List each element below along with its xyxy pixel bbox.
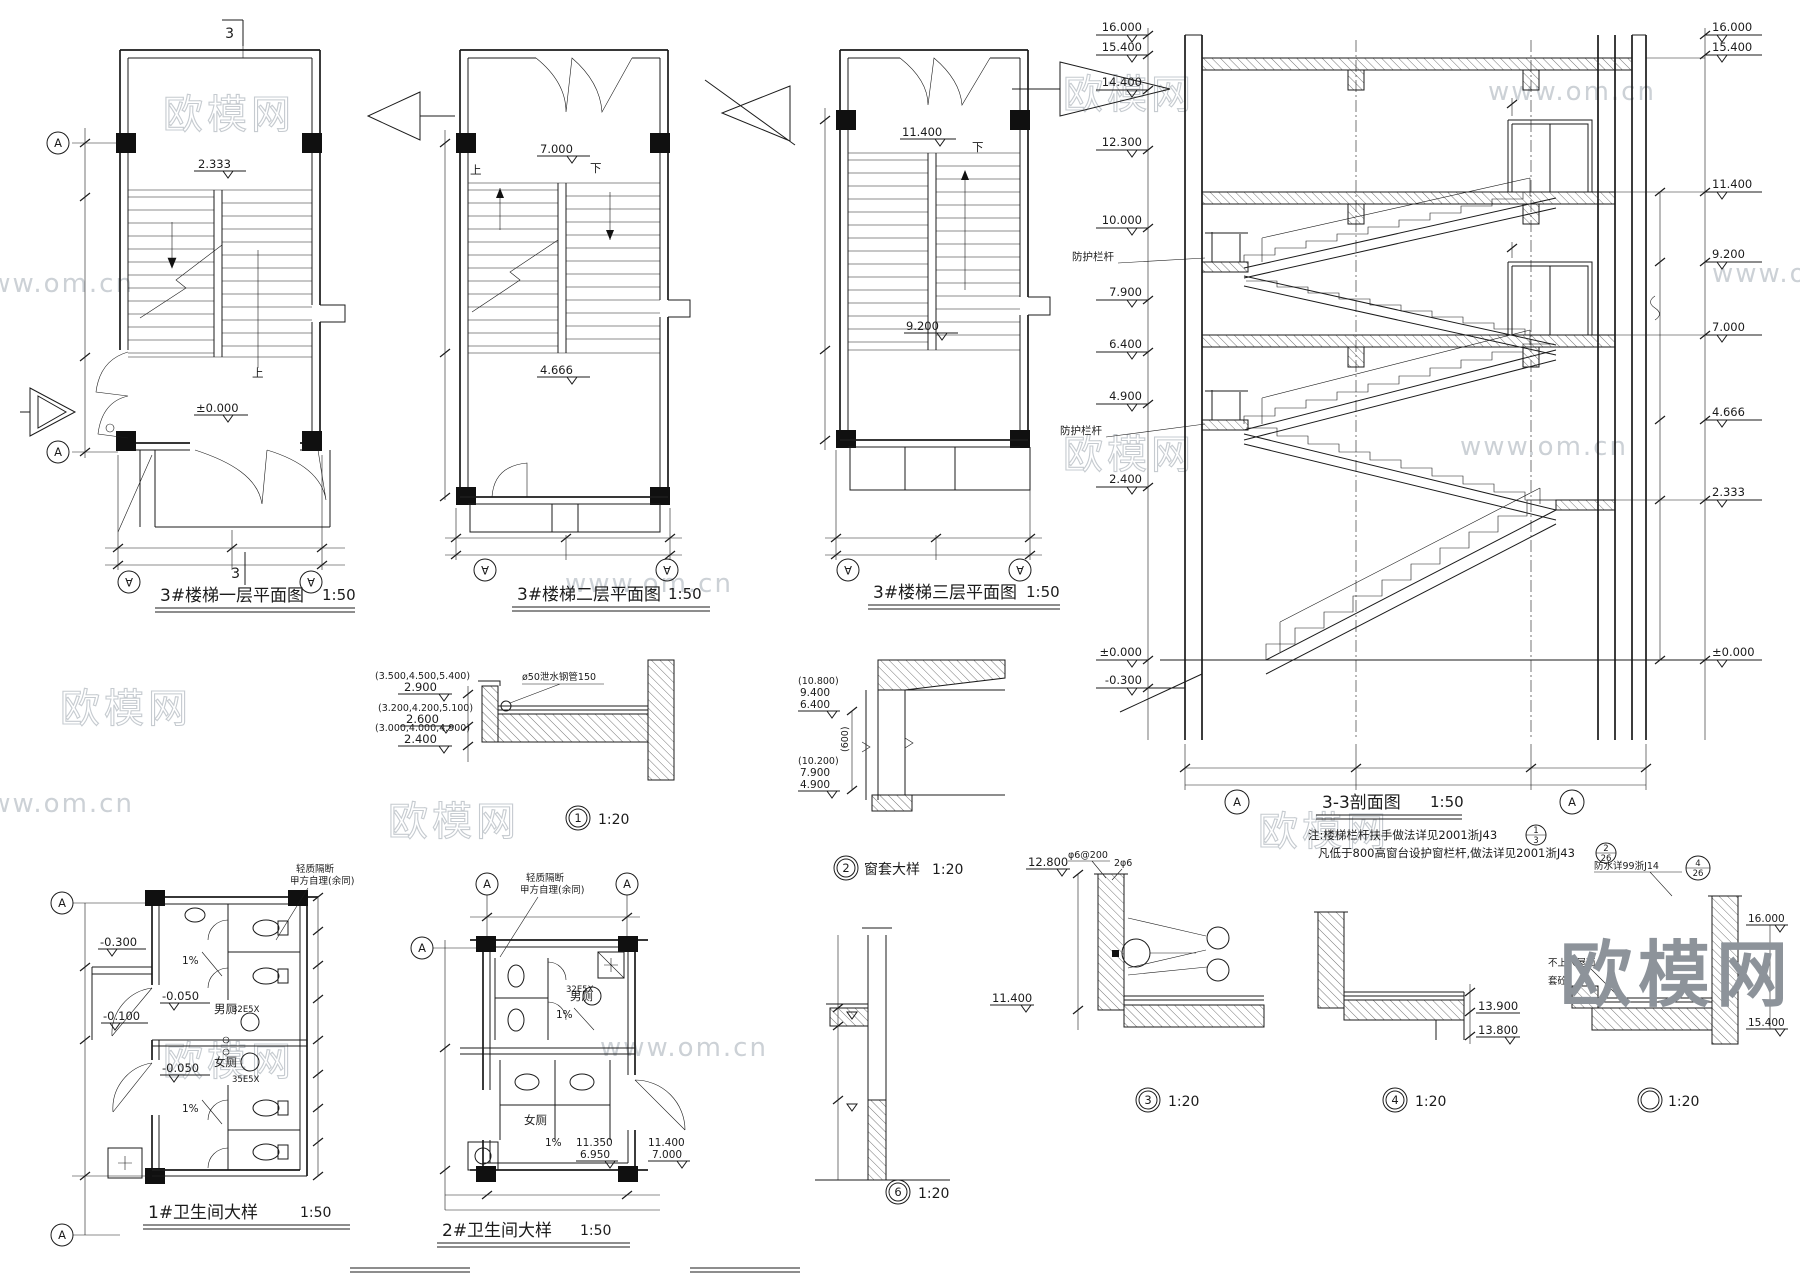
level-label: 2.400 [1109, 472, 1142, 486]
d1-value-3: 2.400 [404, 732, 437, 746]
watermark-brand: 欧模网 [163, 92, 295, 138]
bath1-slope-2: 1% [182, 1103, 199, 1115]
level-label: 2.333 [1712, 485, 1745, 499]
bath2-lv-out-a: 11.400 [648, 1137, 685, 1149]
grid-bubble-a-flipped: A [481, 563, 489, 577]
bath2-note-2: 甲方自理(余同) [520, 884, 584, 896]
d5-ref-top: 4 [1695, 859, 1700, 869]
d4-scale: 1:20 [1415, 1094, 1446, 1110]
note-ref-top: 2 [1603, 844, 1608, 854]
level-label: -0.300 [1105, 673, 1142, 687]
section-right-levels: 16.000 15.400 11.400 9.200 7.000 4.666 2… [1700, 20, 1762, 667]
d2-bot-a: 7.900 [800, 767, 830, 779]
plan2-level-top: 7.000 [540, 142, 573, 156]
level-label: 15.400 [1712, 40, 1752, 54]
plan3-direction-down: 下 [972, 140, 984, 154]
plan3-level-top: 11.400 [902, 125, 942, 139]
section-flag-bottom: 3 [231, 566, 240, 582]
drawing-canvas: 欧模网 欧模网 欧模网 欧模网 欧模网 欧模网 欧模网 www.om.cn ww… [0, 0, 1800, 1275]
level-label: 7.900 [1109, 285, 1142, 299]
note-ref-bottom: 3 [1533, 836, 1538, 846]
level-label: 12.300 [1102, 135, 1142, 149]
d1-pipe-label: ø50泄水钢管150 [522, 671, 596, 683]
grid-bubble-a-flipped: A [1016, 563, 1024, 577]
detail-6-wall-section: 6 1:20 [815, 928, 950, 1204]
plan2-direction-up: 上 [470, 163, 482, 177]
d3-rebar-b: 2φ6 [1114, 858, 1132, 869]
plan1-title: 3#楼梯一层平面图 [160, 586, 304, 606]
bath2-room-m: 男厕 [570, 989, 593, 1003]
level-label: 7.000 [1712, 320, 1745, 334]
bath2-scale: 1:50 [580, 1223, 611, 1239]
section-flag-top: 3 [225, 26, 234, 42]
plan-second-floor: 上 下 7.000 4.666 A A 3#楼梯二层平面图 1:50 [368, 50, 710, 611]
d2-top-a: 9.400 [800, 687, 830, 699]
d2-name: 窗套大样 [864, 861, 920, 878]
bath2-lv-out-b: 7.000 [652, 1149, 682, 1161]
d3-level-top: 12.800 [1028, 855, 1068, 869]
grid-bubble-a: A [483, 877, 491, 891]
bath1-level-b: -0.050 [162, 989, 199, 1003]
detail-3-parapet: 12.800 φ6@200 2φ6 11.400 3 1:20 [990, 850, 1264, 1112]
d3-rebar-a: φ6@200 [1068, 850, 1108, 861]
level-label: 9.200 [1712, 247, 1745, 261]
bath1-room-f: 女厕 [214, 1055, 237, 1069]
grid-bubble-a-flipped: A [307, 575, 315, 589]
d1-value-1: 2.900 [404, 680, 437, 694]
watermark-brand-large: 欧模网 [1560, 933, 1794, 1017]
grid-bubble-a-flipped: A [125, 575, 133, 589]
d5-level-b: 15.400 [1748, 1017, 1785, 1029]
level-label: 4.666 [1712, 405, 1745, 419]
grid-bubble-a-flipped: A [663, 563, 671, 577]
level-label: 11.400 [1712, 177, 1752, 191]
d2-scale: 1:20 [932, 862, 963, 878]
d2-bot-paren: (10.200) [798, 756, 839, 767]
d5-ref: 防水详99浙J14 [1594, 860, 1659, 872]
level-label: ±0.000 [1712, 645, 1755, 659]
bath1-fixture-tag-2: 35E5X [232, 1075, 260, 1085]
section-title: 3-3剖面图 [1322, 793, 1401, 813]
level-label: ±0.000 [1099, 645, 1142, 659]
watermark-brand: 欧模网 [388, 799, 520, 845]
plan1-level-top: 2.333 [198, 157, 231, 171]
d3-level-bottom: 11.400 [992, 991, 1032, 1005]
d5-ref-bottom: 26 [1693, 869, 1704, 879]
grid-bubble-a: A [418, 941, 426, 955]
plan1-level-bottom: ±0.000 [196, 401, 239, 415]
watermark-url: www.om.cn [0, 269, 134, 299]
watermark-brand: 欧模网 [60, 686, 192, 732]
note-ref-top: 1 [1533, 826, 1538, 836]
plan1-direction-up: 上 [252, 366, 264, 380]
bath1-slope: 1% [182, 955, 199, 967]
grid-bubble-a: A [58, 896, 66, 910]
bath2-lv-in-b: 6.950 [580, 1149, 610, 1161]
bath1-note-1: 轻质隔断 [296, 863, 335, 875]
d2-number: 2 [842, 861, 849, 875]
section-note-2: 凡低于800高窗台设护窗栏杆,做法详见2001浙J43 [1318, 846, 1575, 860]
d6-scale: 1:20 [918, 1186, 949, 1202]
plan2-title: 3#楼梯二层平面图 [517, 585, 661, 605]
detail-2-window-trim: (10.800) 9.400 6.400 (600) (10.200) 7.90… [798, 660, 1005, 880]
watermark-url: www.om.cn [0, 789, 134, 819]
d2-mid-dim: (600) [840, 726, 851, 752]
d3-number: 3 [1144, 1093, 1151, 1107]
grid-bubble-a: A [1568, 795, 1576, 809]
section-scale: 1:50 [1430, 793, 1464, 811]
bath1-note-2: 甲方自理(余同) [290, 875, 354, 887]
section-railing-label: 防护栏杆 [1072, 250, 1114, 263]
detail-4-slab-edge: 13.900 13.800 4 1:20 [1314, 912, 1520, 1112]
bath1-level-c: -0.100 [103, 1009, 140, 1023]
watermark-url: www.om.cn [1712, 259, 1800, 289]
d4-number: 4 [1391, 1093, 1398, 1107]
bath2-room-f: 女厕 [524, 1113, 547, 1127]
bath1-level-d: -0.050 [162, 1061, 199, 1075]
bath2-slope-2: 1% [545, 1137, 562, 1149]
d4-level-a: 13.900 [1478, 999, 1518, 1013]
level-label: 15.400 [1102, 40, 1142, 54]
grid-bubble-a: A [623, 877, 631, 891]
section-railing-label: 防护栏杆 [1060, 424, 1102, 437]
plan3-level-bottom: 9.200 [906, 319, 939, 333]
d2-bot-b: 4.900 [800, 779, 830, 791]
bath2-lv-in-a: 11.350 [576, 1137, 613, 1149]
grid-bubble-a-flipped: A [844, 563, 852, 577]
plan3-title: 3#楼梯三层平面图 [873, 583, 1017, 603]
section-left-levels: 16.000 15.400 14.400 12.300 10.000 7.900… [1096, 20, 1153, 695]
grid-bubble-a: A [1233, 795, 1241, 809]
grid-bubble-a: A [58, 1228, 66, 1242]
d2-top-b: 6.400 [800, 699, 830, 711]
plan2-level-bottom: 4.666 [540, 363, 573, 377]
bath1-scale: 1:50 [300, 1205, 331, 1221]
section-note-1: 注:楼梯栏杆扶手做法详见2001浙J43 [1308, 828, 1497, 842]
level-label: 16.000 [1712, 20, 1752, 34]
plan2-direction-down: 下 [590, 161, 602, 175]
d5-level-a: 16.000 [1748, 913, 1785, 925]
plan3-scale: 1:50 [1026, 583, 1060, 601]
bath1-room-m: 男厕 [214, 1002, 237, 1016]
cutoff-stubs [350, 1268, 800, 1272]
cad-sheet: 欧模网 欧模网 欧模网 欧模网 欧模网 欧模网 欧模网 www.om.cn ww… [0, 0, 1800, 1275]
plan1-scale: 1:50 [322, 586, 356, 604]
plan2-scale: 1:50 [668, 585, 702, 603]
bath2-note-1: 轻质隔断 [526, 872, 565, 884]
d5-scale: 1:20 [1668, 1094, 1699, 1110]
d6-number: 6 [894, 1185, 901, 1199]
bath1-level-a: -0.300 [100, 935, 137, 949]
bath1-title: 1#卫生间大样 [148, 1203, 258, 1223]
d1-scale: 1:20 [598, 812, 629, 828]
grid-bubble-a: A [54, 445, 62, 459]
d1-number: 1 [574, 811, 581, 825]
level-label: 6.400 [1109, 337, 1142, 351]
plan-third-floor: 下 11.400 9.200 A A 3#楼梯三层平面图 1:50 [705, 50, 1060, 609]
watermark-url: www.om.cn [1460, 432, 1628, 462]
d3-scale: 1:20 [1168, 1094, 1199, 1110]
level-label: 4.900 [1109, 389, 1142, 403]
grid-bubble-a: A [54, 136, 62, 150]
bath2-title: 2#卫生间大样 [442, 1221, 552, 1241]
bath2-slope: 1% [556, 1009, 573, 1021]
d4-level-b: 13.800 [1478, 1023, 1518, 1037]
level-label: 10.000 [1102, 213, 1142, 227]
d2-top-paren: (10.800) [798, 676, 839, 687]
level-label: 16.000 [1102, 20, 1142, 34]
